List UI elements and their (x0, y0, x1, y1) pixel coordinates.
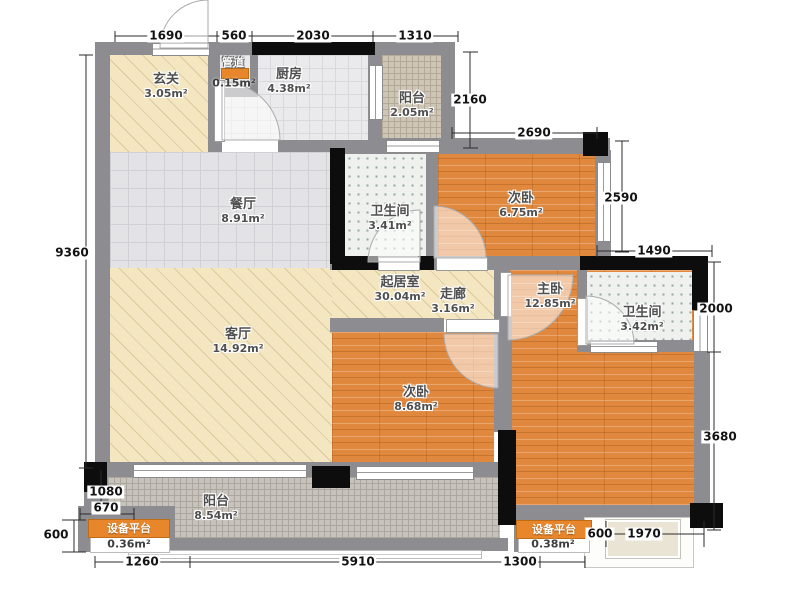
room-corridor-label: 走廊 3.16m² (431, 288, 474, 316)
room-bath2-area: 3.42m² (620, 320, 663, 334)
room-living-name: 客厅 (212, 328, 263, 342)
room-duct-name: 管道 (222, 54, 244, 70)
room-master-name: 主卧 (524, 283, 575, 297)
room-bedroom2-area: 8.68m² (394, 400, 437, 414)
dim-right-1490: 1490 (635, 245, 672, 258)
dim-top-1690: 1690 (147, 30, 184, 43)
room-kitchen-area: 4.38m² (267, 82, 310, 96)
room-corridor-area: 3.16m² (431, 302, 474, 316)
dim-right-2000: 2000 (697, 303, 734, 316)
room-bath1-label: 卫生间 3.41m² (368, 205, 411, 233)
dim-right-2160: 2160 (451, 94, 488, 107)
room-kitchen-name: 厨房 (267, 68, 310, 82)
room-balcony-top-name: 阳台 (390, 92, 433, 106)
room-entry-name: 玄关 (144, 73, 187, 87)
dim-top-2030: 2030 (294, 30, 331, 43)
room-balcony-bottom-area: 8.54m² (194, 509, 237, 523)
room-bath1-name: 卫生间 (368, 205, 411, 219)
room-balcony-top-area: 2.05m² (390, 106, 433, 120)
room-bath1-area: 3.41m² (368, 219, 411, 233)
platform-right-area: 0.38m² (531, 538, 574, 551)
room-duct-area: 0.15m² (212, 77, 255, 90)
room-bath2-name: 卫生间 (620, 306, 663, 320)
room-bedroom1-name: 次卧 (499, 192, 542, 206)
dim-right-2590: 2590 (602, 192, 639, 205)
room-bedroom1-label: 次卧 6.75m² (499, 192, 542, 220)
dim-bottom-600: 600 (585, 528, 614, 541)
dim-bottom-1260: 1260 (123, 556, 160, 569)
dim-top-1310: 1310 (396, 30, 433, 43)
dim-left-600: 600 (41, 529, 70, 542)
room-dining-area: 8.91m² (221, 212, 264, 226)
room-living-area: 14.92m² (212, 342, 263, 356)
room-bedroom1-area: 6.75m² (499, 206, 542, 220)
room-kitchen-label: 厨房 4.38m² (267, 68, 310, 96)
room-master-label: 主卧 12.85m² (524, 283, 575, 311)
dim-left-1080: 1080 (87, 486, 124, 499)
room-bath2-label: 卫生间 3.42m² (620, 306, 663, 334)
dim-bottom-5910: 5910 (339, 556, 376, 569)
room-living-zone-name: 起居室 (374, 276, 425, 290)
room-corridor-name: 走廊 (431, 288, 474, 302)
room-dining-name: 餐厅 (221, 198, 264, 212)
dim-right-2690: 2690 (515, 127, 552, 140)
dim-bottom-1970: 1970 (625, 528, 662, 541)
room-dining-label: 餐厅 8.91m² (221, 198, 264, 226)
room-bedroom2-name: 次卧 (394, 386, 437, 400)
room-balcony-bottom-label: 阳台 8.54m² (194, 495, 237, 523)
room-bedroom2-label: 次卧 8.68m² (394, 386, 437, 414)
room-entry-area: 3.05m² (144, 87, 187, 101)
floor-plan: 设备平台 0.36m² 设备平台 0.38m² 管道 0.15m² (0, 0, 800, 600)
dim-top-560: 560 (219, 30, 248, 43)
room-balcony-top-label: 阳台 2.05m² (390, 92, 433, 120)
platform-left-area: 0.36m² (107, 538, 150, 551)
room-entry-label: 玄关 3.05m² (144, 73, 187, 101)
dim-right-3680: 3680 (701, 431, 738, 444)
dim-left-9360: 9360 (53, 247, 90, 260)
room-living-zone-label: 起居室 30.04m² (374, 276, 425, 304)
room-balcony-bottom-name: 阳台 (194, 495, 237, 509)
room-living-label: 客厅 14.92m² (212, 328, 263, 356)
dim-bottom-1300: 1300 (501, 556, 538, 569)
dim-left-670: 670 (91, 502, 120, 515)
room-master-area: 12.85m² (524, 297, 575, 311)
room-living-zone-area: 30.04m² (374, 290, 425, 304)
